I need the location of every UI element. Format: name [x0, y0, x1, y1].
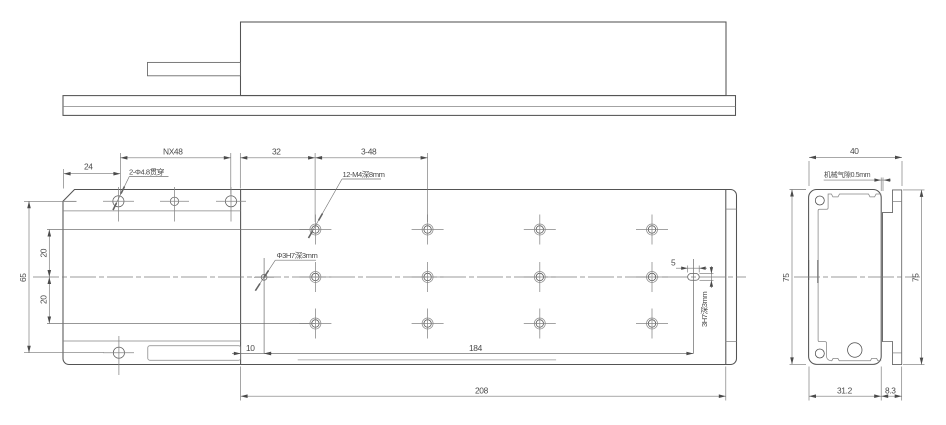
svg-text:3H7深3mm: 3H7深3mm	[700, 292, 709, 327]
svg-text:机械气隙0.5mm: 机械气隙0.5mm	[824, 170, 871, 179]
svg-text:208: 208	[475, 386, 489, 396]
svg-text:5: 5	[671, 258, 676, 268]
svg-text:3-48: 3-48	[361, 147, 377, 157]
svg-text:Φ3H7深3mm: Φ3H7深3mm	[277, 251, 318, 260]
svg-text:40: 40	[850, 146, 859, 156]
svg-text:12-M4深8mm: 12-M4深8mm	[343, 170, 385, 179]
svg-text:20: 20	[39, 295, 49, 304]
svg-text:65: 65	[18, 273, 28, 282]
svg-text:31.2: 31.2	[837, 386, 853, 396]
svg-text:32: 32	[272, 147, 281, 157]
svg-text:8.3: 8.3	[885, 386, 896, 396]
svg-text:10: 10	[246, 343, 255, 353]
svg-text:184: 184	[469, 343, 483, 353]
svg-text:2-Φ4.8贯穿: 2-Φ4.8贯穿	[129, 167, 165, 177]
svg-text:75: 75	[911, 273, 921, 282]
svg-text:NX48: NX48	[163, 147, 183, 157]
svg-text:24: 24	[84, 162, 93, 172]
svg-text:75: 75	[781, 273, 791, 282]
svg-text:20: 20	[39, 248, 49, 257]
